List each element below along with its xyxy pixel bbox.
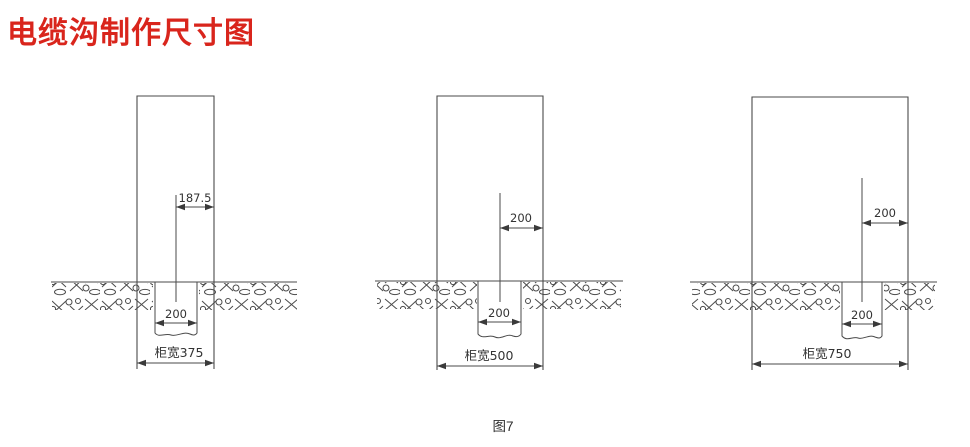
- arrowhead-left: [842, 321, 851, 327]
- dim-label: 200: [510, 211, 532, 225]
- dim-label: 187.5: [179, 191, 212, 205]
- figure-caption: 图7: [492, 415, 513, 435]
- dim-cabinet-width: 柜宽750: [752, 346, 908, 367]
- arrowhead-right: [873, 321, 882, 327]
- arrowhead-right: [512, 319, 521, 325]
- dim-label: 柜宽750: [803, 346, 852, 361]
- cabinet-outline: [437, 96, 543, 370]
- soil-hatch-right: [884, 283, 935, 310]
- dim-center-offset: 187.5: [176, 191, 214, 210]
- cabinet-outline: [752, 97, 908, 370]
- dim-label: 200: [874, 206, 896, 220]
- arrowhead-right: [899, 220, 908, 226]
- soil-hatch-right: [523, 282, 621, 309]
- dim-label: 柜宽500: [465, 348, 514, 363]
- dim-trench-width: 200: [842, 308, 882, 327]
- dim-label: 200: [165, 307, 187, 321]
- arrowhead-left: [137, 360, 146, 366]
- diagram-cabinet-500: 200 200 柜宽500: [375, 96, 623, 370]
- arrowhead-left: [478, 319, 487, 325]
- dim-cabinet-width: 柜宽375: [137, 345, 214, 366]
- arrowhead-left: [500, 225, 509, 231]
- soil-hatch-left: [692, 283, 840, 310]
- dim-center-offset: 200: [862, 206, 908, 226]
- soil-hatch-right: [199, 283, 297, 310]
- dim-cabinet-width: 柜宽500: [437, 348, 543, 369]
- diagram-cabinet-375: 187.5 200 柜宽375: [51, 96, 297, 369]
- arrowhead-left: [155, 320, 164, 326]
- diagram-cabinet-750: 200 200 柜宽750: [690, 97, 937, 370]
- soil-hatch-left: [52, 283, 153, 310]
- arrowhead-left: [437, 363, 446, 369]
- dim-trench-width: 200: [478, 306, 521, 325]
- dim-trench-width: 200: [155, 307, 197, 326]
- arrowhead-right: [188, 320, 197, 326]
- dim-label: 200: [851, 308, 873, 322]
- dim-center-offset: 200: [500, 211, 543, 231]
- arrowhead-right: [534, 363, 543, 369]
- arrowhead-left: [752, 361, 761, 367]
- dim-label: 柜宽375: [155, 345, 204, 360]
- diagram-canvas: 187.5 200 柜宽375 200: [0, 0, 970, 447]
- dim-label: 200: [488, 306, 510, 320]
- arrowhead-left: [862, 220, 871, 226]
- arrowhead-right: [205, 360, 214, 366]
- soil-hatch-left: [377, 282, 477, 309]
- arrowhead-right: [899, 361, 908, 367]
- arrowhead-right: [534, 225, 543, 231]
